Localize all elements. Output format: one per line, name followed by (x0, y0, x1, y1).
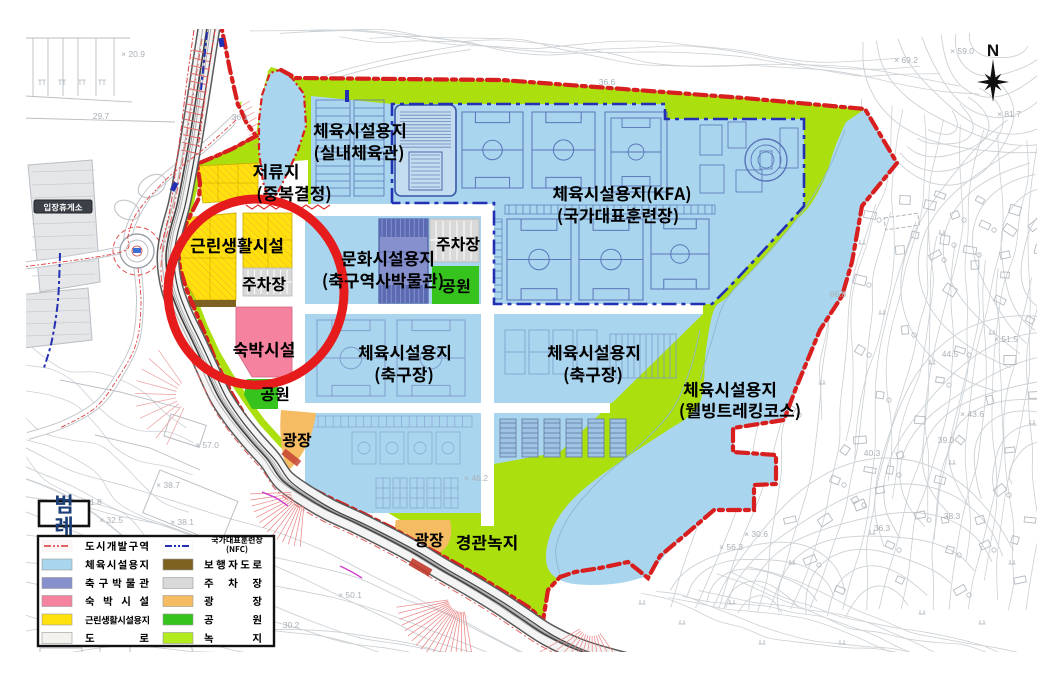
svg-text:× 50.1: × 50.1 (338, 590, 362, 600)
svg-text:× 51.5: × 51.5 (994, 334, 1018, 344)
svg-text:× 30.6: × 30.6 (744, 529, 768, 539)
svg-text:36.6: 36.6 (599, 77, 616, 87)
svg-text:36.1: 36.1 (232, 112, 249, 122)
svg-text:29.7: 29.7 (93, 111, 110, 121)
svg-text:× 59.0: × 59.0 (950, 46, 974, 56)
svg-text:30.2: 30.2 (283, 620, 300, 630)
svg-text:40.3: 40.3 (864, 448, 881, 458)
svg-text:× 20.9: × 20.9 (121, 49, 145, 59)
svg-text:× 69.2: × 69.2 (894, 55, 918, 65)
svg-text:× 81.7: × 81.7 (997, 109, 1021, 119)
svg-text:× 46.2: × 46.2 (464, 473, 488, 483)
svg-text:39.0: 39.0 (938, 435, 955, 445)
svg-text:× 43.6: × 43.6 (960, 409, 984, 419)
svg-text:× 38.7: × 38.7 (156, 480, 180, 490)
svg-text:N: N (987, 41, 999, 60)
svg-text:× 56.3: × 56.3 (719, 542, 743, 552)
svg-text:× 38.1: × 38.1 (170, 517, 194, 527)
svg-text:44.5: 44.5 (942, 349, 959, 359)
svg-text:× 32.5: × 32.5 (99, 515, 123, 525)
svg-text:38.3: 38.3 (944, 511, 961, 521)
svg-text:36.3: 36.3 (874, 523, 891, 533)
svg-text:1.8: 1.8 (90, 497, 102, 507)
svg-text:66.8: 66.8 (830, 289, 847, 299)
svg-text:× 57.0: × 57.0 (195, 440, 219, 450)
